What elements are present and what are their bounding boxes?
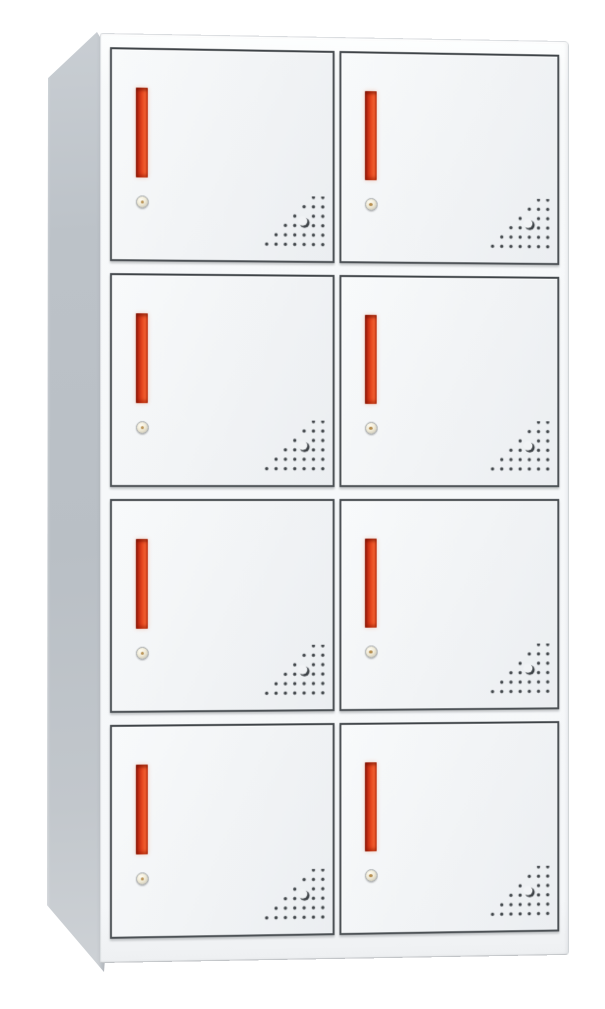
locker-door — [110, 499, 334, 713]
vent-holes-icon — [263, 645, 326, 697]
door-lock-keyhole — [136, 195, 149, 208]
door-lock-keyhole — [364, 422, 377, 435]
door-lock-keyhole — [364, 645, 377, 658]
locker-door — [110, 273, 334, 487]
vent-holes-icon — [490, 866, 552, 918]
door-lock-keyhole — [364, 198, 377, 211]
product-image-canvas — [0, 0, 605, 1009]
door-handle — [136, 765, 148, 855]
vent-holes-icon — [263, 420, 326, 472]
door-handle — [136, 313, 148, 403]
vent-holes-icon — [263, 196, 326, 248]
door-handle — [136, 88, 148, 178]
door-lock-keyhole — [136, 872, 149, 885]
door-handle — [364, 539, 376, 628]
vent-holes-icon — [263, 869, 326, 922]
door-handle — [364, 315, 376, 404]
locker-door — [339, 721, 559, 935]
cabinet-side-panel — [46, 31, 105, 973]
locker-door — [339, 51, 559, 265]
vent-holes-icon — [490, 198, 552, 250]
door-handle — [364, 762, 376, 851]
vent-holes-icon — [490, 421, 552, 472]
doors-grid — [110, 47, 559, 939]
locker-door — [339, 499, 559, 711]
locker-door — [110, 47, 334, 263]
door-lock-keyhole — [136, 421, 149, 434]
door-lock-keyhole — [364, 869, 377, 882]
vent-holes-icon — [490, 644, 552, 696]
door-handle — [136, 539, 148, 629]
locker-door — [110, 723, 334, 939]
door-handle — [364, 91, 376, 180]
locker-door — [339, 275, 559, 487]
cabinet-front — [100, 33, 569, 963]
door-lock-keyhole — [136, 647, 149, 660]
